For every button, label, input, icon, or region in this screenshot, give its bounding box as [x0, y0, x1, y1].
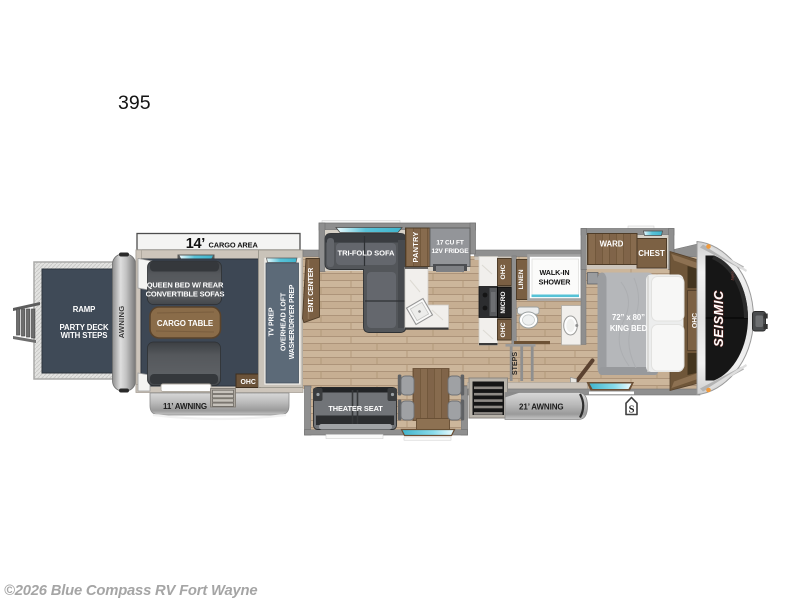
- svg-text:11’ AWNING: 11’ AWNING: [163, 402, 207, 411]
- svg-text:OHC: OHC: [500, 322, 507, 337]
- svg-text:CHEST: CHEST: [638, 249, 665, 258]
- svg-text:TRI-FOLD SOFA: TRI-FOLD SOFA: [338, 249, 396, 258]
- svg-text:KING BED: KING BED: [610, 324, 648, 333]
- svg-text:MICRO: MICRO: [500, 291, 507, 313]
- svg-text:ENT. CENTER: ENT. CENTER: [308, 268, 315, 312]
- svg-text:AWNING: AWNING: [117, 306, 126, 339]
- svg-text:RAMP: RAMP: [73, 305, 96, 314]
- svg-text:72” x 80”: 72” x 80”: [612, 313, 645, 322]
- svg-text:12V FRIDGE: 12V FRIDGE: [432, 248, 470, 255]
- svg-text:CONVERTIBLE SOFAS: CONVERTIBLE SOFAS: [146, 290, 225, 299]
- svg-text:QUEEN BED W/ REAR: QUEEN BED W/ REAR: [147, 281, 224, 290]
- svg-text:CARGO TABLE: CARGO TABLE: [157, 319, 213, 328]
- svg-text:OHC: OHC: [500, 264, 507, 279]
- svg-text:THEATER SEAT: THEATER SEAT: [328, 404, 383, 413]
- svg-text:SEISMIC: SEISMIC: [711, 290, 726, 347]
- svg-text:PANTRY: PANTRY: [411, 232, 420, 263]
- svg-text:WARD: WARD: [600, 240, 624, 249]
- svg-text:WASHER/DRYER PREP: WASHER/DRYER PREP: [289, 284, 296, 359]
- svg-text:21’ AWNING: 21’ AWNING: [519, 403, 564, 412]
- svg-text:OHC: OHC: [241, 379, 256, 386]
- svg-text:S: S: [629, 405, 635, 416]
- svg-text:17 CU FT: 17 CU FT: [436, 240, 464, 247]
- svg-text:LINEN: LINEN: [518, 269, 525, 289]
- svg-text:WITH STEPS: WITH STEPS: [61, 331, 108, 340]
- svg-text:TV PREP: TV PREP: [269, 307, 276, 336]
- svg-text:CARGO AREA: CARGO AREA: [209, 241, 259, 250]
- svg-text:STEPS: STEPS: [511, 352, 519, 376]
- svg-text:WALK-IN: WALK-IN: [539, 268, 569, 277]
- svg-text:OVERHEAD LOFT: OVERHEAD LOFT: [281, 292, 288, 351]
- svg-text:Jayco: Jayco: [731, 271, 735, 280]
- svg-text:©2026 Blue Compass RV Fort Way: ©2026 Blue Compass RV Fort Wayne: [4, 583, 257, 599]
- svg-text:SHOWER: SHOWER: [539, 278, 572, 287]
- svg-text:395: 395: [118, 92, 151, 114]
